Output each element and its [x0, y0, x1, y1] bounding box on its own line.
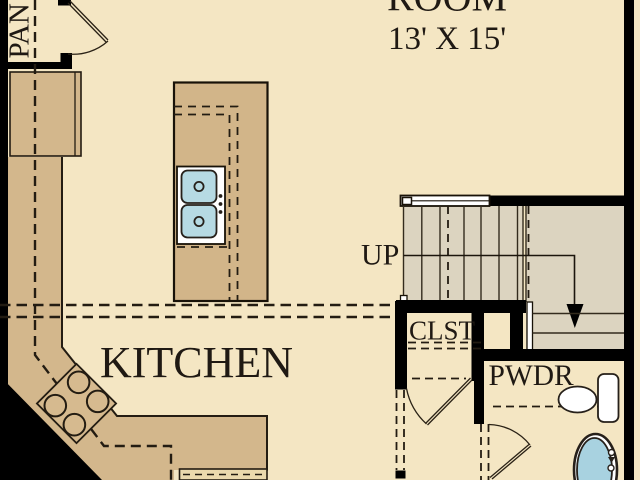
svg-text:KITCHEN: KITCHEN	[100, 338, 293, 387]
svg-text:13' X 15': 13' X 15'	[388, 21, 506, 57]
svg-text:PAN: PAN	[4, 3, 36, 58]
svg-text:PWDR: PWDR	[489, 360, 575, 392]
svg-text:ROOM: ROOM	[387, 0, 507, 20]
svg-text:UP: UP	[361, 239, 399, 272]
svg-text:CLST: CLST	[409, 316, 476, 346]
